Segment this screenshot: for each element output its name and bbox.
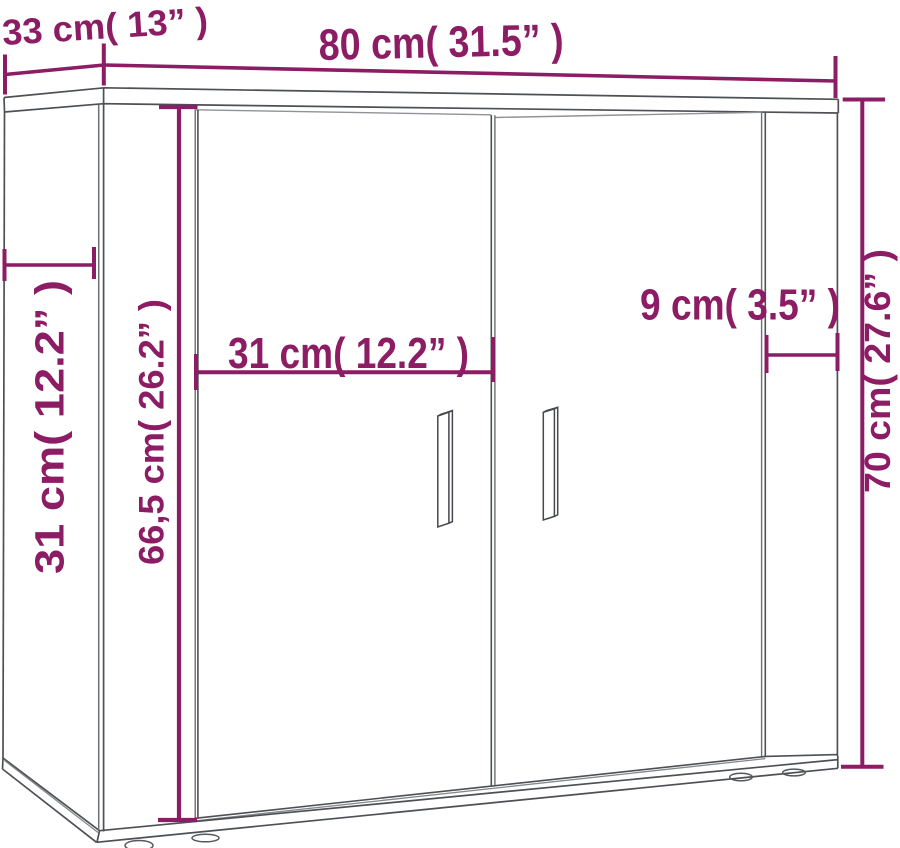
- svg-text:80 cm( 31.5” ): 80 cm( 31.5” ): [318, 15, 564, 70]
- svg-text:9 cm( 3.5” ): 9 cm( 3.5” ): [640, 281, 840, 330]
- svg-text:66,5 cm( 26.2” ): 66,5 cm( 26.2” ): [133, 299, 172, 565]
- svg-text:70 cm( 27.6” ): 70 cm( 27.6” ): [857, 249, 898, 493]
- svg-text:31 cm( 12.2” ): 31 cm( 12.2” ): [27, 280, 73, 574]
- svg-text:31 cm( 12.2” ): 31 cm( 12.2” ): [228, 329, 469, 378]
